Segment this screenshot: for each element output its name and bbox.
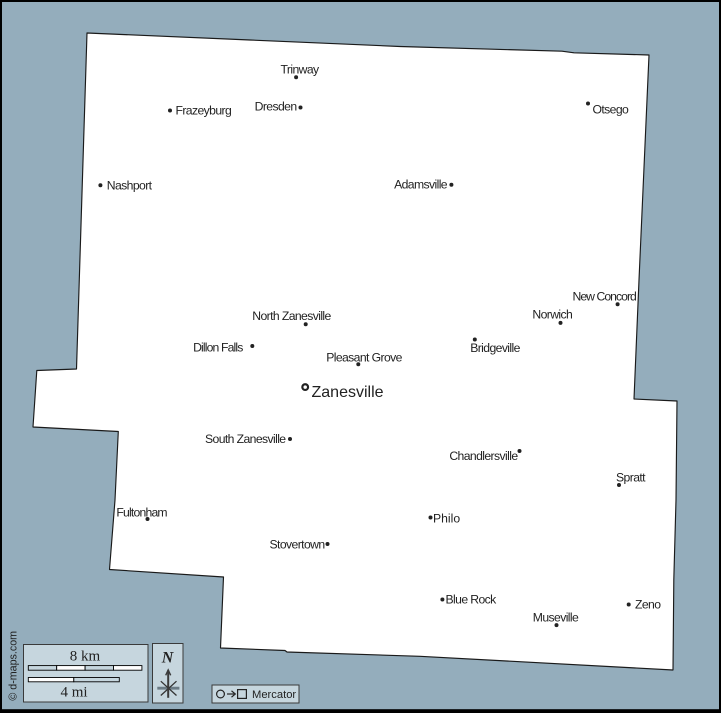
svg-text:8 km: 8 km	[70, 649, 101, 665]
svg-text:Trinway: Trinway	[280, 63, 320, 77]
svg-text:Zeno: Zeno	[635, 598, 661, 612]
svg-text:Adamsville: Adamsville	[394, 178, 448, 192]
svg-text:N: N	[161, 650, 175, 667]
svg-text:Chandlersville: Chandlersville	[449, 449, 518, 463]
svg-text:Blue Rock: Blue Rock	[446, 592, 498, 606]
svg-text:Frazeyburg: Frazeyburg	[176, 104, 232, 118]
svg-text:Fultonham: Fultonham	[116, 505, 167, 519]
svg-text:Nashport: Nashport	[107, 179, 153, 193]
svg-text:Pleasant Grove: Pleasant Grove	[326, 351, 402, 365]
svg-text:Otsego: Otsego	[593, 102, 630, 116]
svg-text:Mercator: Mercator	[252, 689, 296, 701]
svg-text:Norwich: Norwich	[532, 308, 572, 322]
svg-text:Philo: Philo	[433, 511, 460, 525]
svg-text:Stovertown: Stovertown	[270, 537, 325, 551]
svg-text:Bridgeville: Bridgeville	[470, 341, 520, 355]
svg-text:North Zanesville: North Zanesville	[252, 309, 331, 323]
svg-text:Dillon Falls: Dillon Falls	[193, 340, 243, 354]
svg-text:Dresden: Dresden	[255, 99, 297, 113]
svg-text:© d-maps.com: © d-maps.com	[7, 631, 19, 701]
svg-text:Spratt: Spratt	[616, 470, 646, 484]
svg-text:4 mi: 4 mi	[60, 685, 87, 701]
svg-text:Zanesville: Zanesville	[312, 384, 384, 401]
svg-text:South Zanesville: South Zanesville	[205, 432, 286, 446]
svg-text:New Concord: New Concord	[573, 289, 637, 303]
svg-text:Museville: Museville	[533, 611, 579, 625]
